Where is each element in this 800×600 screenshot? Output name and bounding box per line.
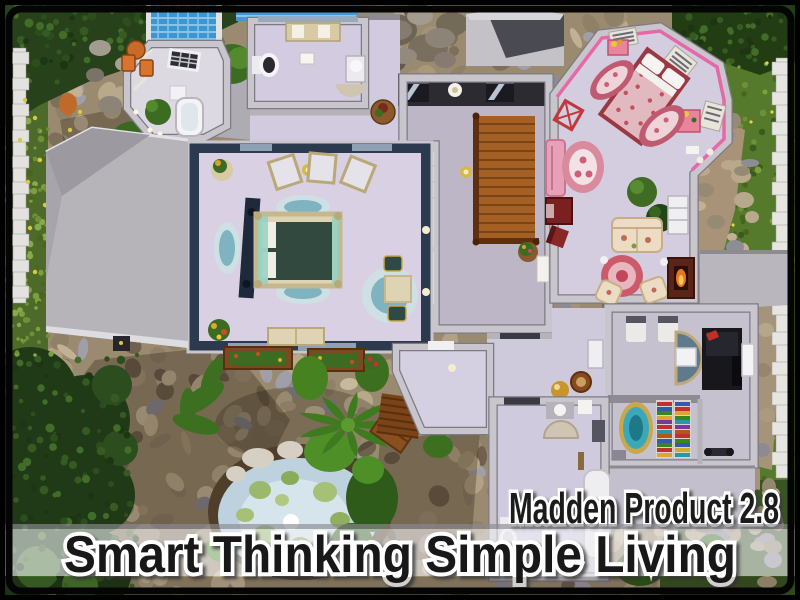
svg-text:Smart Thinking Simple Living: Smart Thinking Simple Living bbox=[64, 526, 736, 584]
